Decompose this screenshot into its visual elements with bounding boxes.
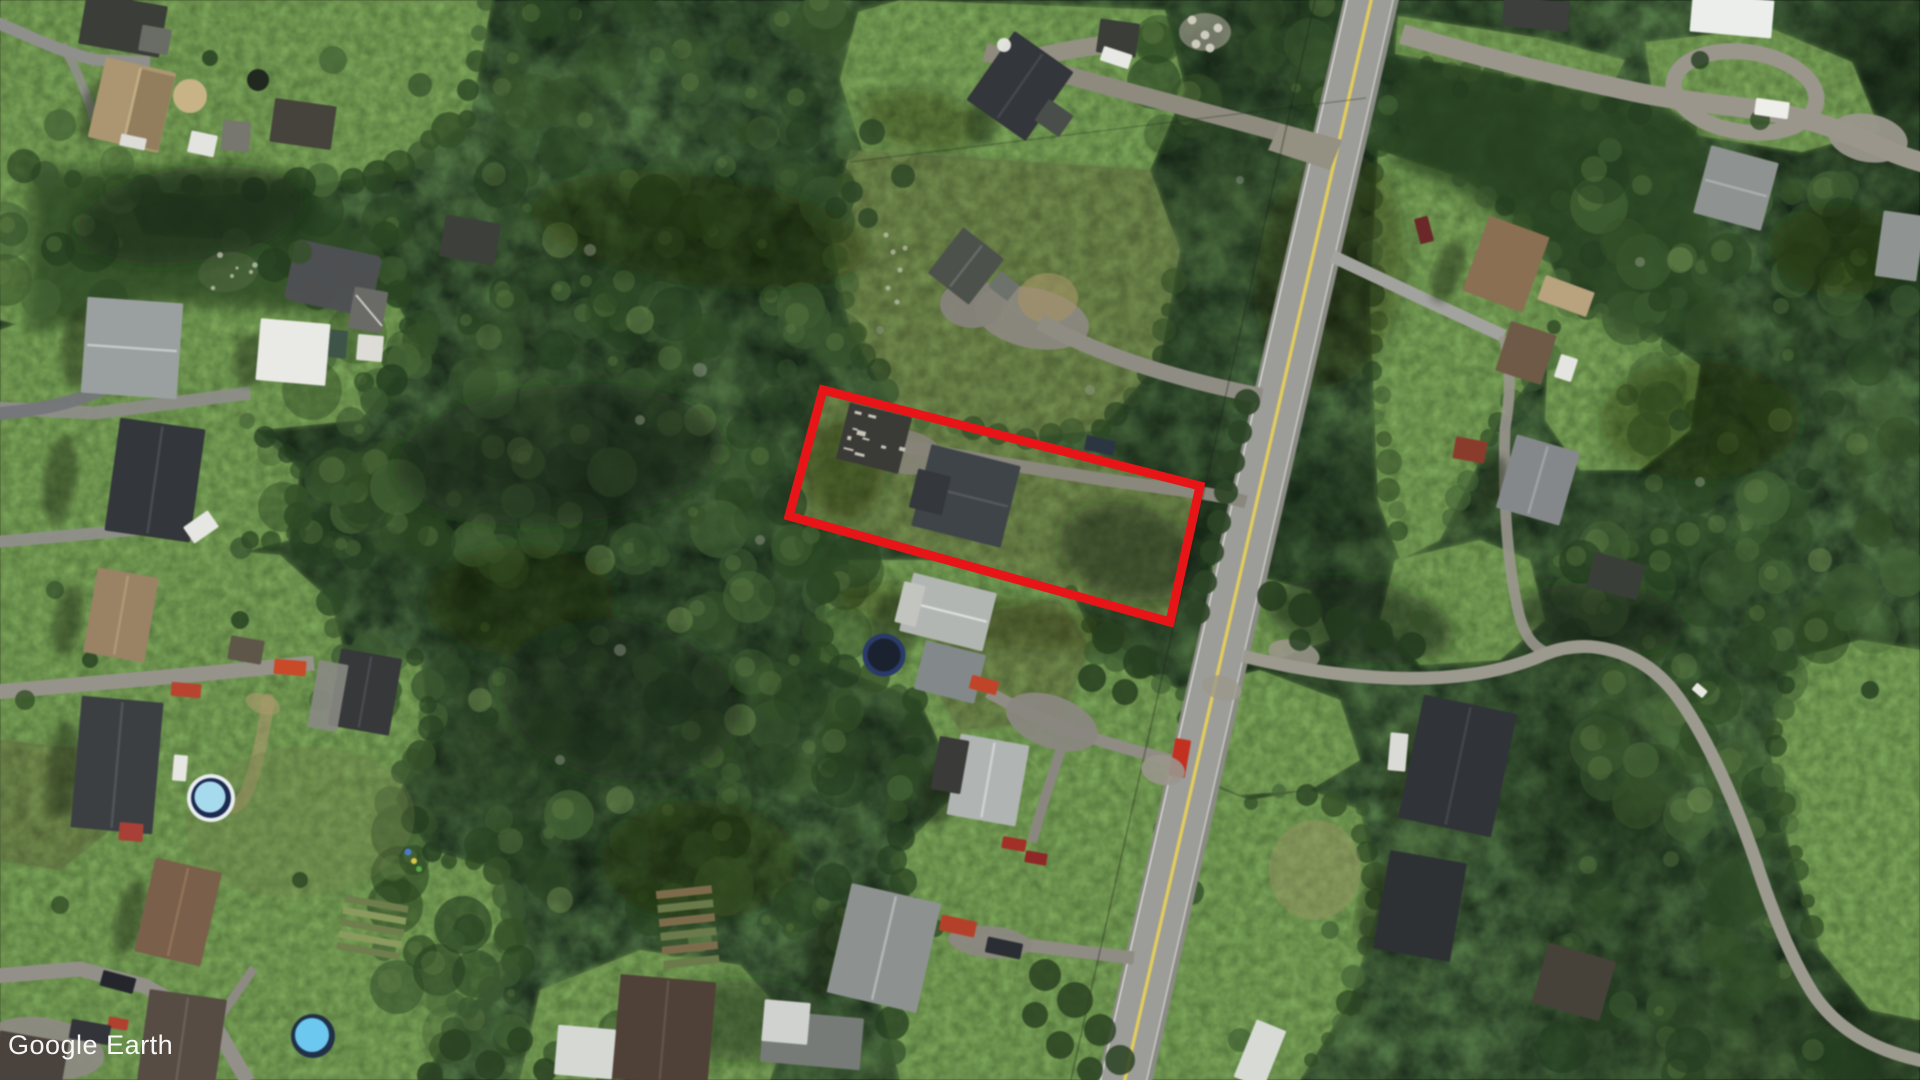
svg-text:Google Earth: Google Earth xyxy=(8,1030,173,1060)
